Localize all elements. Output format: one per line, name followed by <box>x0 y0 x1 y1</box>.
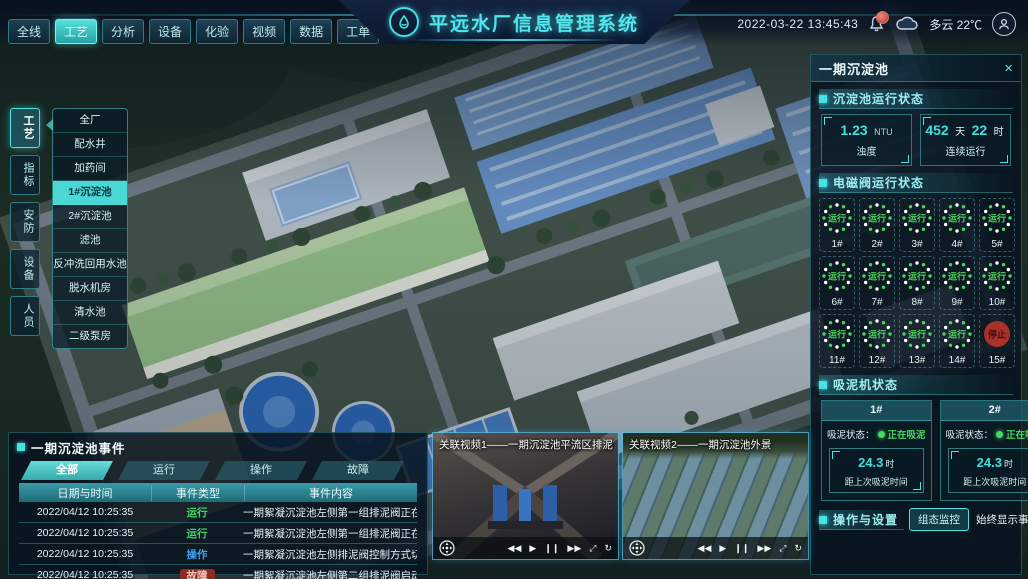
rewind-icon[interactable]: ◀◀ <box>508 544 522 553</box>
menu-item-全厂[interactable]: 全厂 <box>53 109 127 133</box>
pause-icon[interactable]: ❙❙ <box>544 544 559 553</box>
svg-text:运行: 运行 <box>828 271 846 282</box>
valve-id-label: 2# <box>860 239 894 250</box>
valve-running-icon: 运行 <box>820 317 854 351</box>
fullscreen-icon[interactable]: ⤢ <box>779 544 786 553</box>
loop-icon[interactable]: ↻ <box>604 544 612 553</box>
valve-running-icon: 运行 <box>940 259 974 293</box>
valve-4#: 运行4# <box>939 198 975 252</box>
mud-status-value: 正在吸泥 <box>888 427 926 441</box>
app-title: 平远水厂信息管理系统 <box>429 9 639 36</box>
valve-grid: 运行1#运行2#运行3#运行4#运行5#运行6#运行7#运行8#运行9#运行10… <box>819 198 1013 368</box>
valve-id-label: 15# <box>980 355 1014 366</box>
section-bullet-icon <box>17 443 25 451</box>
turbidity-card: 1.23 NTU 浊度 <box>821 114 912 166</box>
valve-id-label: 7# <box>860 297 894 308</box>
events-column-1: 日期与时间 <box>19 485 152 501</box>
svg-text:停止: 停止 <box>988 329 1006 340</box>
ptz-control-icon[interactable] <box>629 540 645 556</box>
event-time: 2022/04/12 10:25:35 <box>19 527 151 539</box>
event-type: 故障 <box>151 568 243 579</box>
title-plate: 平远水厂信息管理系统 <box>338 0 690 44</box>
valve-id-label: 14# <box>940 355 974 366</box>
valve-8#: 运行8# <box>899 256 935 310</box>
valve-14#: 运行14# <box>939 314 975 368</box>
weather-cloud-icon <box>895 16 919 32</box>
events-tab-运行[interactable]: 运行 <box>118 461 210 480</box>
valve-running-icon: 运行 <box>820 201 854 235</box>
menu-item-配水井[interactable]: 配水井 <box>53 133 127 157</box>
section-header-valves: 电磁阀运行状态 <box>819 173 1013 193</box>
mud-unit: 时 <box>885 459 894 469</box>
nav-tab-全线[interactable]: 全线 <box>8 19 50 44</box>
menu-item-清水池[interactable]: 清水池 <box>53 301 127 325</box>
panel-title: 一期沉淀池 <box>819 59 889 78</box>
section-bullet-icon <box>819 381 827 389</box>
valve-running-icon: 运行 <box>900 201 934 235</box>
rewind-icon[interactable]: ◀◀ <box>698 544 712 553</box>
valve-id-label: 3# <box>900 239 934 250</box>
event-content: 一期絮凝沉淀池左侧第二组排泥阀启动失败 <box>243 568 417 579</box>
menu-item-脱水机房[interactable]: 脱水机房 <box>53 277 127 301</box>
valve-15#: 停止15# <box>979 314 1015 368</box>
svg-text:运行: 运行 <box>868 271 886 282</box>
events-titlebar: 一期沉淀池事件 <box>9 436 427 458</box>
mud-value-label: 距上次吸泥时间 <box>832 475 921 488</box>
events-column-2: 事件类型 <box>152 485 245 501</box>
valve-id-label: 9# <box>940 297 974 308</box>
valve-5#: 运行5# <box>979 198 1015 252</box>
side-tab-安防[interactable]: 安防 <box>10 202 40 242</box>
status-dot-icon <box>878 431 885 438</box>
mud-machine-2#: 2#吸泥状态：正在吸泥24.3时距上次吸泥时间 <box>940 400 1028 501</box>
svg-text:运行: 运行 <box>828 329 846 340</box>
valve-running-icon: 运行 <box>860 201 894 235</box>
valve-10#: 运行10# <box>979 256 1015 310</box>
video-2-controls: ◀◀▶❙❙▶▶⤢↻ <box>623 537 808 559</box>
running-stats: 1.23 NTU 浊度 452 天 22 时 连续运行 <box>821 114 1011 166</box>
events-table-body: 2022/04/12 10:25:35运行一期絮凝沉淀池左侧第一组排泥阀正在排泥… <box>19 502 417 579</box>
section-header-operations: 操作与设置 <box>819 510 904 530</box>
table-row: 2022/04/12 10:25:35运行一期絮凝沉淀池左侧第一组排泥阀正在排泥 <box>19 502 417 523</box>
turbidity-value: 1.23 <box>840 122 867 138</box>
svg-text:运行: 运行 <box>868 329 886 340</box>
top-right-info: 2022-03-22 13:45:43 多云 22℃ <box>737 12 1016 36</box>
valve-running-icon: 运行 <box>980 201 1014 235</box>
valve-id-label: 6# <box>820 297 854 308</box>
menu-item-二级泵房[interactable]: 二级泵房 <box>53 325 127 348</box>
event-type: 操作 <box>151 547 243 562</box>
event-time: 2022/04/12 10:25:35 <box>19 548 151 560</box>
nav-tab-数据[interactable]: 数据 <box>290 19 332 44</box>
valve-running-icon: 运行 <box>860 259 894 293</box>
notification-bell-icon[interactable] <box>868 15 885 33</box>
events-title: 一期沉淀池事件 <box>31 438 126 457</box>
menu-item-加药间[interactable]: 加药间 <box>53 157 127 181</box>
forward-icon[interactable]: ▶▶ <box>757 544 771 553</box>
event-type: 运行 <box>151 526 243 541</box>
event-type-badge: 故障 <box>180 569 215 579</box>
svg-text:运行: 运行 <box>948 329 966 340</box>
event-content: 一期絮凝沉淀池左侧第一组排泥阀正在排泥 <box>243 526 417 541</box>
play-icon[interactable]: ▶ <box>529 544 536 553</box>
section-header-mud: 吸泥机状态 <box>819 375 1013 395</box>
mud-unit: 时 <box>1004 459 1013 469</box>
mud-machine-id: 1# <box>822 401 931 421</box>
valve-running-icon: 运行 <box>940 201 974 235</box>
dashboard: 全线工艺分析设备化验视频数据工单系统 平远水厂信息管理系统 2022-03-22… <box>0 0 1028 579</box>
section-bullet-icon <box>819 95 827 103</box>
svg-text:运行: 运行 <box>988 213 1006 224</box>
datetime: 2022-03-22 13:45:43 <box>737 17 858 31</box>
menu-item-反冲洗回用水池[interactable]: 反冲洗回用水池 <box>53 253 127 277</box>
svg-text:运行: 运行 <box>868 213 886 224</box>
mud-value-line: 24.3时 <box>951 454 1028 472</box>
valve-6#: 运行6# <box>819 256 855 310</box>
video-1-title: 关联视频1——一期沉淀池平流区排泥管廊 <box>439 437 614 452</box>
turbidity-label: 浊度 <box>857 143 877 158</box>
mud-value-box: 24.3时距上次吸泥时间 <box>829 448 924 493</box>
events-table-header: 日期与时间事件类型事件内容 <box>19 483 417 502</box>
valve-id-label: 4# <box>940 239 974 250</box>
menu-item-滤池[interactable]: 滤池 <box>53 229 127 253</box>
mud-machine-id: 2# <box>941 401 1028 421</box>
close-icon[interactable]: × <box>1004 61 1013 76</box>
operations-row: 操作与设置 组态监控 始终显示事件： <box>811 503 1021 535</box>
events-column-3: 事件内容 <box>245 485 417 501</box>
status-dot-icon <box>996 431 1003 438</box>
valve-id-label: 12# <box>860 355 894 366</box>
pause-icon[interactable]: ❙❙ <box>734 544 749 553</box>
valve-13#: 运行13# <box>899 314 935 368</box>
nav-tab-化验[interactable]: 化验 <box>196 19 238 44</box>
valve-9#: 运行9# <box>939 256 975 310</box>
mud-status-label: 吸泥状态： <box>946 427 994 441</box>
events-panel: 一期沉淀池事件 全部运行操作故障 日期与时间事件类型事件内容 2022/04/1… <box>8 432 428 575</box>
mud-value: 24.3 <box>977 455 1002 470</box>
svg-text:运行: 运行 <box>828 213 846 224</box>
valve-3#: 运行3# <box>899 198 935 252</box>
event-type-badge: 运行 <box>187 528 208 540</box>
valve-id-label: 11# <box>820 355 854 366</box>
svg-text:运行: 运行 <box>908 213 926 224</box>
event-content: 一期絮凝沉淀池左侧排泥阀控制方式切换为手动 <box>243 547 417 562</box>
valve-running-icon: 运行 <box>820 259 854 293</box>
notification-badge <box>876 11 889 24</box>
scada-monitor-button[interactable]: 组态监控 <box>909 508 969 531</box>
mud-value-line: 24.3时 <box>832 454 921 472</box>
video-panel-2: 关联视频2——一期沉淀池外景 ◀◀▶❙❙▶▶⤢↻ <box>622 432 809 560</box>
side-tab-人员[interactable]: 人员 <box>10 296 40 336</box>
event-content: 一期絮凝沉淀池左侧第一组排泥阀正在排泥 <box>243 505 417 520</box>
valve-running-icon: 运行 <box>900 259 934 293</box>
turbidity-unit: NTU <box>874 127 893 137</box>
table-row: 2022/04/12 10:25:35运行一期絮凝沉淀池左侧第一组排泥阀正在排泥 <box>19 523 417 544</box>
video-panel-1: 关联视频1——一期沉淀池平流区排泥管廊 ◀◀▶❙❙▶▶⤢↻ <box>432 432 619 560</box>
app-logo-icon <box>389 7 419 37</box>
event-time: 2022/04/12 10:25:35 <box>19 506 151 518</box>
event-type-badge: 操作 <box>187 549 208 561</box>
menu-item-2#沉淀池[interactable]: 2#沉淀池 <box>53 205 127 229</box>
section-header-running: 沉淀池运行状态 <box>819 89 1013 109</box>
runtime-label: 连续运行 <box>946 143 986 158</box>
side-tab-设备[interactable]: 设备 <box>10 249 40 289</box>
sedimentation-panel: 一期沉淀池 × 沉淀池运行状态 1.23 NTU 浊度 452 天 22 时 <box>810 54 1022 575</box>
video-1-controls: ◀◀▶❙❙▶▶⤢↻ <box>433 537 618 559</box>
nav-tab-设备[interactable]: 设备 <box>149 19 191 44</box>
valve-id-label: 10# <box>980 297 1014 308</box>
section-bullet-icon <box>819 516 827 524</box>
event-time: 2022/04/12 10:25:35 <box>19 569 151 579</box>
valve-running-icon: 运行 <box>940 317 974 351</box>
fullscreen-icon[interactable]: ⤢ <box>589 544 596 553</box>
runtime-card: 452 天 22 时 连续运行 <box>920 114 1011 166</box>
panel-titlebar: 一期沉淀池 × <box>811 55 1021 82</box>
ptz-control-icon[interactable] <box>439 540 455 556</box>
mud-status-label: 吸泥状态： <box>827 427 875 441</box>
events-tab-全部[interactable]: 全部 <box>21 461 113 480</box>
decorative-line-left <box>0 14 370 16</box>
svg-text:运行: 运行 <box>988 271 1006 282</box>
table-row: 2022/04/12 10:25:35操作一期絮凝沉淀池左侧排泥阀控制方式切换为… <box>19 544 417 565</box>
user-avatar[interactable] <box>992 12 1016 36</box>
forward-icon[interactable]: ▶▶ <box>567 544 581 553</box>
valve-running-icon: 运行 <box>860 317 894 351</box>
valve-12#: 运行12# <box>859 314 895 368</box>
mud-value-box: 24.3时距上次吸泥时间 <box>948 448 1028 493</box>
mud-value: 24.3 <box>858 455 883 470</box>
svg-text:运行: 运行 <box>908 329 926 340</box>
events-table: 日期与时间事件类型事件内容 2022/04/12 10:25:35运行一期絮凝沉… <box>19 483 417 579</box>
play-icon[interactable]: ▶ <box>719 544 726 553</box>
svg-text:运行: 运行 <box>908 271 926 282</box>
events-tab-操作[interactable]: 操作 <box>215 461 307 480</box>
menu-item-1#沉淀池[interactable]: 1#沉淀池 <box>53 181 127 205</box>
valve-running-icon: 运行 <box>900 317 934 351</box>
show-events-label: 始终显示事件： <box>976 512 1028 527</box>
nav-tab-视频[interactable]: 视频 <box>243 19 285 44</box>
valve-id-label: 13# <box>900 355 934 366</box>
mud-status-row: 吸泥状态：正在吸泥 <box>941 421 1028 443</box>
nav-tab-分析[interactable]: 分析 <box>102 19 144 44</box>
valve-1#: 运行1# <box>819 198 855 252</box>
side-tab-指标[interactable]: 指标 <box>10 155 40 195</box>
svg-text:运行: 运行 <box>948 213 966 224</box>
valve-7#: 运行7# <box>859 256 895 310</box>
valve-id-label: 1# <box>820 239 854 250</box>
event-type: 运行 <box>151 505 243 520</box>
valve-stopped-icon: 停止 <box>980 317 1014 351</box>
title-underline <box>408 39 619 41</box>
video-2-title: 关联视频2——一期沉淀池外景 <box>629 437 804 452</box>
events-tab-故障[interactable]: 故障 <box>312 461 404 480</box>
event-type-badge: 运行 <box>187 507 208 519</box>
mud-status-value: 正在吸泥 <box>1006 427 1028 441</box>
mud-machines: 1#吸泥状态：正在吸泥24.3时距上次吸泥时间2#吸泥状态：正在吸泥24.3时距… <box>821 400 1011 501</box>
valve-2#: 运行2# <box>859 198 895 252</box>
section-bullet-icon <box>819 179 827 187</box>
svg-text:运行: 运行 <box>948 271 966 282</box>
loop-icon[interactable]: ↻ <box>794 544 802 553</box>
weather-text: 多云 22℃ <box>929 16 982 33</box>
valve-11#: 运行11# <box>819 314 855 368</box>
events-tabs: 全部运行操作故障 <box>21 461 427 480</box>
side-tab-工艺[interactable]: 工艺 <box>10 108 40 148</box>
table-row: 2022/04/12 10:25:35故障一期絮凝沉淀池左侧第二组排泥阀启动失败 <box>19 565 417 579</box>
nav-tab-工艺[interactable]: 工艺 <box>55 19 97 44</box>
side-tabs: 工艺指标安防设备人员 <box>10 108 40 336</box>
mud-value-label: 距上次吸泥时间 <box>951 475 1028 488</box>
valve-id-label: 5# <box>980 239 1014 250</box>
process-menu: 全厂配水井加药间1#沉淀池2#沉淀池滤池反冲洗回用水池脱水机房清水池二级泵房 <box>52 108 128 349</box>
valve-running-icon: 运行 <box>980 259 1014 293</box>
mud-status-row: 吸泥状态：正在吸泥 <box>822 421 931 443</box>
valve-id-label: 8# <box>900 297 934 308</box>
mud-machine-1#: 1#吸泥状态：正在吸泥24.3时距上次吸泥时间 <box>821 400 932 501</box>
